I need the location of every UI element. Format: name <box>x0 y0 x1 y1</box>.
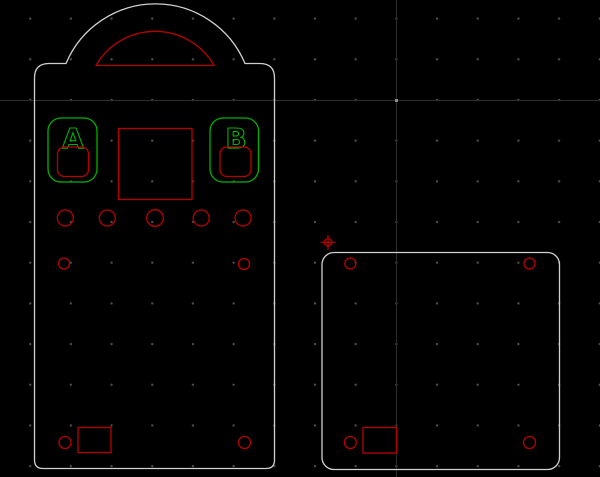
connector-slot-cut[interactable] <box>363 428 397 454</box>
hole-circle[interactable] <box>57 210 73 226</box>
mount-hole-circle[interactable] <box>59 437 71 449</box>
corner-hole-circle[interactable] <box>345 258 356 269</box>
right-part-outline[interactable] <box>322 253 560 470</box>
corner-hole-circle[interactable] <box>524 258 535 269</box>
button-b-label: B <box>225 122 246 155</box>
connector-slot-cut[interactable] <box>78 428 111 453</box>
hole-circle[interactable] <box>99 210 115 226</box>
small-hole-circle[interactable] <box>59 258 70 269</box>
corner-hole-circle[interactable] <box>524 437 536 449</box>
right-part[interactable] <box>322 253 560 470</box>
origin-marker-icon[interactable] <box>321 235 336 250</box>
left-part[interactable]: A B <box>35 4 275 469</box>
hole-circle[interactable] <box>235 210 251 226</box>
hole-circle[interactable] <box>147 210 164 227</box>
left-part-outline[interactable] <box>35 4 275 469</box>
drawing-layer: A B <box>0 0 600 477</box>
small-hole-circle[interactable] <box>239 259 250 270</box>
button-a-label: A <box>62 122 84 155</box>
corner-hole-circle[interactable] <box>344 437 356 449</box>
cad-canvas[interactable]: A B <box>0 0 600 477</box>
mount-hole-circle[interactable] <box>239 437 251 449</box>
dome-window-cut[interactable] <box>96 31 214 65</box>
hole-circle[interactable] <box>193 210 209 226</box>
display-square-cut[interactable] <box>119 129 193 200</box>
